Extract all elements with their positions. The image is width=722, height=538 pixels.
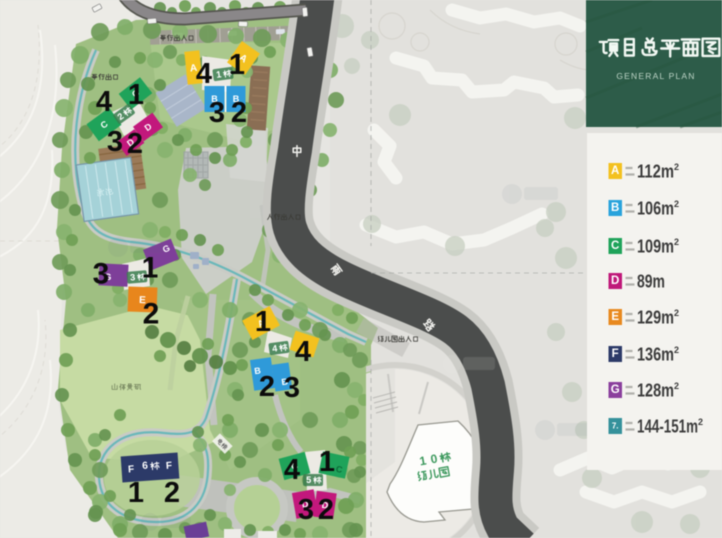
svg-text:2: 2	[231, 97, 247, 129]
svg-text:2: 2	[164, 477, 180, 509]
svg-text:5: 5	[306, 475, 311, 485]
svg-text:3: 3	[284, 372, 300, 404]
svg-text:1: 1	[319, 446, 335, 478]
svg-text:3: 3	[298, 494, 314, 526]
svg-text:E: E	[611, 311, 619, 323]
svg-text:2: 2	[318, 494, 334, 526]
svg-text:A: A	[611, 165, 619, 177]
svg-text:3: 3	[93, 258, 110, 291]
svg-text:4: 4	[96, 86, 112, 118]
svg-text:1: 1	[229, 49, 245, 81]
svg-text:106m: 106m	[637, 198, 674, 219]
svg-text:2: 2	[674, 308, 679, 318]
svg-text:1: 1	[128, 477, 144, 509]
svg-text:D: D	[611, 275, 619, 287]
svg-text:1: 1	[142, 252, 159, 285]
svg-text:1: 1	[255, 306, 271, 338]
svg-text:112m: 112m	[637, 161, 674, 182]
svg-text:6: 6	[142, 461, 149, 472]
svg-text:128m: 128m	[637, 380, 674, 401]
svg-text:3: 3	[107, 126, 123, 158]
svg-text:7.: 7.	[612, 422, 619, 431]
svg-text:4: 4	[295, 336, 311, 368]
svg-text:4: 4	[284, 454, 300, 486]
svg-text:F: F	[166, 460, 173, 471]
svg-text:2: 2	[674, 162, 679, 172]
svg-text:B: B	[611, 202, 619, 214]
svg-text:129m: 129m	[637, 307, 674, 328]
svg-text:136m: 136m	[637, 344, 674, 365]
svg-text:144-151m: 144-151m	[637, 416, 698, 437]
svg-text:GENERAL PLAN: GENERAL PLAN	[616, 71, 695, 81]
svg-text:3: 3	[209, 97, 225, 129]
svg-text:2: 2	[674, 237, 679, 247]
svg-text:89m: 89m	[637, 271, 665, 292]
svg-text:2: 2	[143, 298, 160, 331]
svg-text:1: 1	[128, 79, 144, 111]
svg-text:F: F	[612, 348, 619, 360]
svg-text:2: 2	[698, 417, 703, 427]
svg-text:G: G	[611, 384, 620, 396]
svg-text:109m: 109m	[637, 236, 674, 257]
svg-text:3: 3	[130, 272, 136, 282]
svg-text:2: 2	[674, 381, 679, 391]
svg-text:2: 2	[674, 199, 679, 209]
svg-text:4: 4	[196, 58, 212, 90]
svg-text:2: 2	[674, 345, 679, 355]
svg-text:2: 2	[127, 128, 143, 160]
svg-text:C: C	[611, 240, 619, 252]
svg-text:F: F	[128, 464, 135, 475]
svg-text:2: 2	[259, 371, 275, 403]
